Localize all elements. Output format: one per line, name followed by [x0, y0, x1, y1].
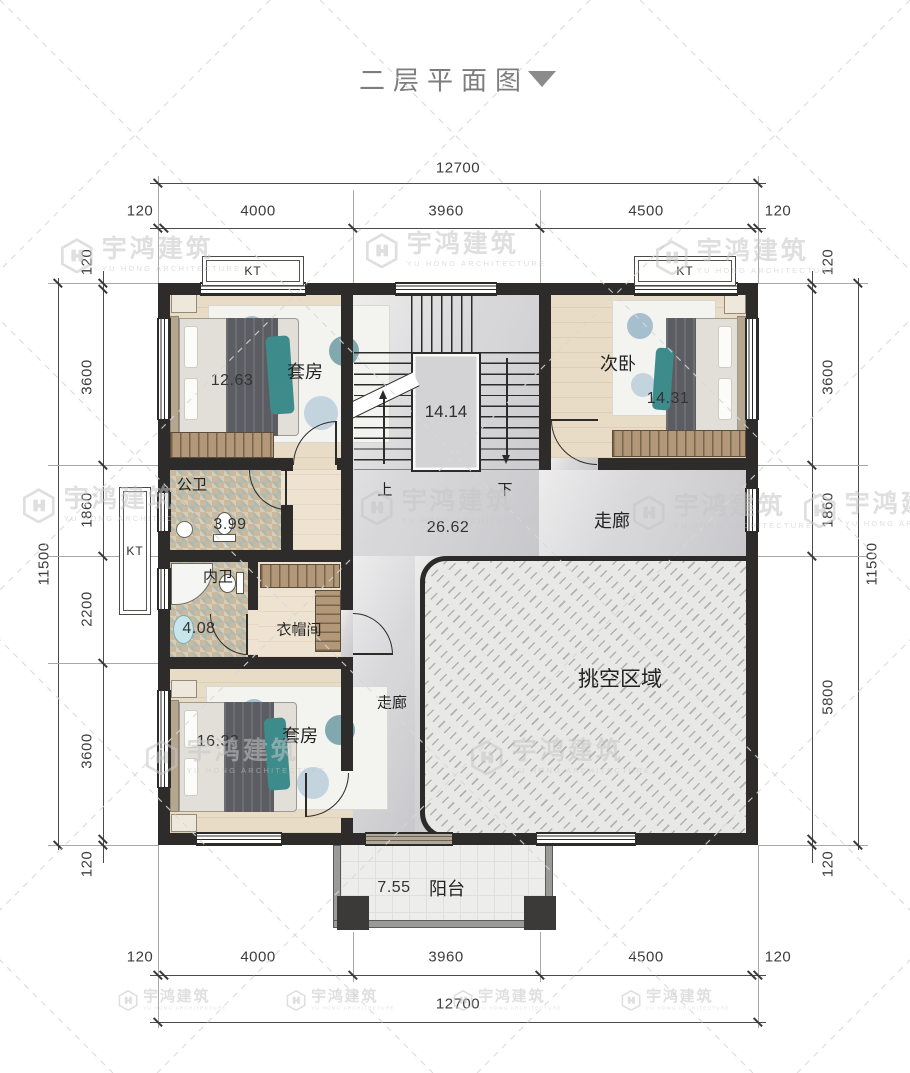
floor-hall-right [539, 465, 746, 556]
dim-total-top: 12700 [436, 160, 480, 177]
dim-seg: 120 [765, 949, 792, 966]
wall-interior [158, 550, 353, 562]
stair-area-label: 14.14 [425, 402, 468, 422]
balcony-sliding-door [365, 832, 453, 846]
room-label-void: 挑空区域 [578, 663, 662, 693]
toilet-tank [213, 534, 236, 542]
wall-interior [598, 458, 746, 470]
ext-line [158, 845, 159, 1028]
bed-headboard [170, 316, 179, 438]
area-label-bedroom2: 14.31 [647, 390, 690, 408]
watermark: 宇鸿建筑YU HONG ARCHITECTURE [117, 989, 226, 1011]
area-label-ensuite-bath: 4.08 [182, 620, 215, 638]
pillow [184, 326, 198, 368]
stair-up-label: 上 [377, 479, 392, 500]
wall-interior [158, 657, 353, 669]
dim-seg: 1860 [820, 492, 837, 527]
wall-interior [281, 505, 293, 556]
dim-line-bottom-outer [150, 1022, 766, 1023]
room-label-ensuite-bath: 内卫 [203, 566, 233, 587]
dim-seg: 4000 [240, 949, 275, 966]
dim-seg: 3600 [820, 359, 837, 394]
dim-total-right: 11500 [864, 542, 881, 585]
stair-treads-right [481, 352, 539, 470]
window [536, 832, 636, 846]
floor-door-patch [341, 610, 353, 657]
wall-interior [158, 458, 293, 470]
page-title: 二层平面图 [359, 61, 529, 98]
nightstand [724, 294, 746, 314]
room-label-bedroom2: 次卧 [600, 350, 636, 376]
sink-mirror-icon [176, 521, 193, 538]
hexagon-logo-icon [285, 989, 307, 1011]
wardrobe [260, 564, 340, 588]
watermark-brand: 宇鸿建筑 [143, 989, 227, 1004]
stair-arrow-down-head [502, 455, 510, 464]
room-label-balcony: 阳台 [429, 875, 465, 901]
area-label-public-bath: 3.99 [213, 516, 246, 534]
column [337, 896, 369, 930]
room-label-cloakroom: 衣帽间 [276, 619, 321, 640]
window [745, 318, 759, 420]
watermark-brand: 宇鸿建筑 [407, 232, 546, 257]
window [745, 488, 759, 532]
triangle-down-icon [528, 71, 556, 87]
dim-line-left-outer [58, 278, 59, 850]
nightstand [171, 814, 197, 832]
window [157, 568, 171, 610]
watermark: 宇鸿建筑YU HONG ARCHITECTURE [620, 989, 729, 1011]
dim-seg: 120 [79, 851, 96, 878]
dim-seg: 4000 [240, 203, 275, 220]
ext-line [353, 190, 354, 283]
stair-arrow-up [383, 398, 385, 464]
dim-line-left-inner [103, 271, 104, 863]
dim-seg: 3600 [79, 359, 96, 394]
watermark: 宇鸿建筑YU HONG ARCHITECTURE [285, 989, 394, 1011]
dim-seg: 3600 [79, 733, 96, 768]
stair-arrow-up-head [379, 390, 387, 399]
column [524, 896, 556, 930]
wall-interior [341, 470, 353, 556]
dim-seg: 120 [127, 203, 154, 220]
dim-seg: 120 [127, 949, 154, 966]
nightstand [171, 294, 197, 313]
watermark-subtitle: YU HONG ARCHITECTURE [646, 1006, 730, 1011]
dim-seg: 3960 [428, 203, 463, 220]
door-leaf [551, 419, 598, 421]
wall-interior [341, 669, 353, 771]
door-leaf [285, 470, 287, 510]
watermark-subtitle: YU HONG ARCHITECTURE [407, 260, 546, 268]
rug-pattern [627, 313, 653, 339]
door-leaf [353, 653, 393, 655]
dim-line-top-outer [150, 183, 766, 184]
watermark-brand: 宇鸿建筑 [646, 989, 730, 1004]
area-label-hall: 26.62 [427, 519, 470, 537]
hexagon-logo-icon [364, 232, 400, 268]
wall-interior [248, 562, 258, 610]
wall-interior [341, 283, 353, 470]
room-label-hall: 走廊 [594, 507, 630, 533]
area-label-suite-bottom: 16.33 [197, 733, 240, 751]
room-label-suite-bottom: 套房 [282, 722, 318, 748]
hexagon-logo-icon [620, 989, 642, 1011]
window [157, 690, 171, 788]
door-leaf [305, 773, 307, 817]
watermark-brand: 宇鸿建筑 [478, 989, 562, 1004]
watermark-subtitle: YU HONG ARCHITECTURE [478, 1006, 562, 1011]
toilet-tank [236, 572, 244, 594]
nightstand [171, 680, 197, 698]
room-label-corridor: 走廊 [377, 692, 407, 713]
wardrobe [612, 430, 746, 457]
door-leaf [246, 614, 248, 655]
dim-seg: 2200 [79, 591, 96, 626]
wall-interior [539, 283, 551, 463]
ext-line [540, 190, 541, 283]
floor-door-patch [248, 610, 258, 655]
wall-interior [337, 458, 353, 470]
dim-seg: 120 [820, 249, 837, 276]
stair-arrow-down [506, 358, 508, 456]
door-leaf [335, 421, 337, 465]
hexagon-logo-icon [21, 487, 57, 523]
ac-platform-label: KT [126, 544, 143, 558]
wall-interior [539, 458, 551, 470]
dim-line-top-inner [150, 228, 766, 229]
watermark-subtitle: YU HONG ARCHITECTURE [311, 1006, 395, 1011]
bed-headboard [170, 700, 179, 812]
dim-line-bottom-inner [150, 975, 766, 976]
floor-plan-page: 二层平面图 12 [0, 0, 910, 1073]
ac-platform: KT [119, 487, 151, 615]
watermark-subtitle: YU HONG ARCHITECTURE [143, 1006, 227, 1011]
void-area-hatch [420, 556, 752, 839]
wall-interior [341, 556, 353, 610]
watermark: 宇鸿建筑YU HONG ARCHITECTURE [364, 232, 546, 268]
dim-total-bottom: 12700 [436, 996, 480, 1013]
watermark-brand: 宇鸿建筑 [845, 492, 910, 517]
pillow [718, 326, 732, 368]
stair-down-label: 下 [497, 479, 512, 500]
ac-platform-label: KT [244, 264, 261, 278]
stair-landing: 14.14 [411, 352, 481, 472]
window [157, 492, 171, 532]
dim-seg: 1860 [79, 492, 96, 527]
dim-seg: 5800 [820, 679, 837, 714]
pillow [184, 758, 198, 796]
dim-seg: 120 [79, 249, 96, 276]
dim-seg: 4500 [628, 203, 663, 220]
area-label-suite-top: 12.63 [211, 372, 254, 390]
watermark: 宇鸿建筑YU HONG ARCHITECTURE [802, 492, 910, 528]
stair-treads-top [411, 296, 481, 352]
room-label-suite-top: 套房 [287, 358, 323, 384]
ac-platform: KT [634, 256, 736, 286]
dim-line-right-outer [858, 278, 859, 850]
wall-interior [341, 818, 353, 845]
room-label-public-bath: 公卫 [177, 474, 207, 495]
dim-seg: 120 [765, 203, 792, 220]
ac-platform: KT [202, 256, 304, 286]
hexagon-logo-icon [117, 989, 139, 1011]
wardrobe [170, 432, 274, 458]
dim-seg: 3960 [428, 949, 463, 966]
window [196, 832, 282, 846]
dim-line-right-inner [812, 271, 813, 863]
window [157, 318, 171, 420]
pillow [184, 378, 198, 420]
dim-seg: 4500 [628, 949, 663, 966]
ac-platform-label: KT [676, 264, 693, 278]
area-label-balcony: 7.55 [377, 879, 410, 897]
dim-seg: 120 [820, 851, 837, 878]
watermark-brand: 宇鸿建筑 [311, 989, 395, 1004]
ext-line [758, 845, 759, 1028]
window [395, 282, 497, 296]
watermark-subtitle: YU HONG ARCHITECTURE [845, 520, 910, 528]
dim-total-left: 11500 [36, 542, 53, 585]
pillow [718, 378, 732, 420]
